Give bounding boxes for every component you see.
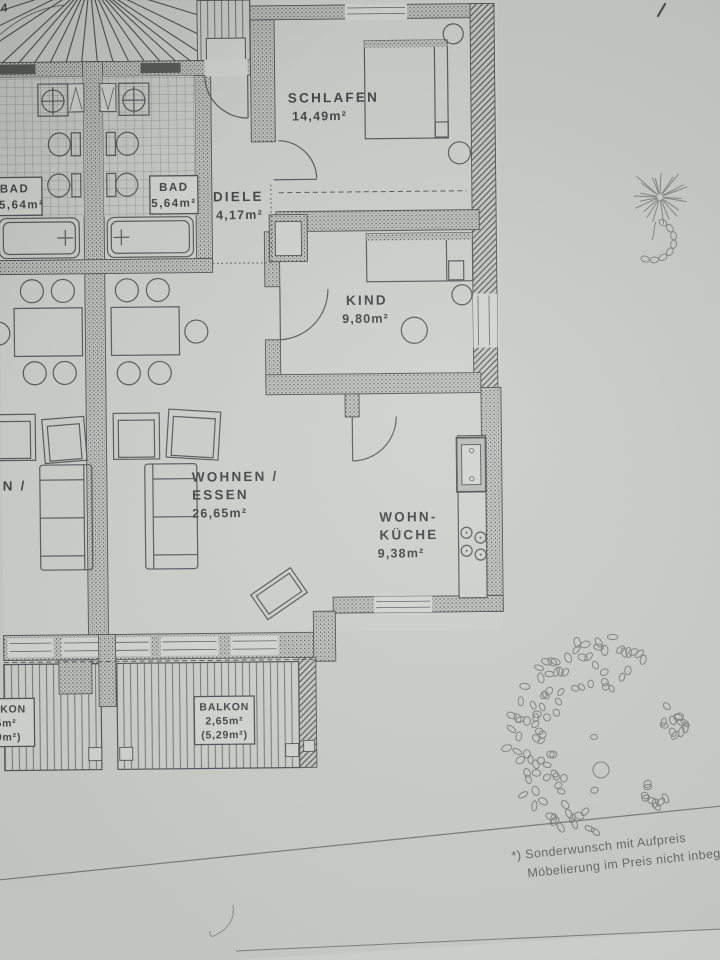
- room-label-bad-left: BAD: [0, 183, 29, 195]
- room-area-balkon-left: 2,65m²: [0, 717, 17, 729]
- room-area-kueche: 9,38m²: [378, 546, 425, 560]
- room-area-bad-right: 5,64m²: [151, 198, 197, 210]
- room-area-diele: 4,17m²: [216, 208, 263, 222]
- room-label-wohnen-1: WOHNEN /: [192, 469, 279, 485]
- footnote: *) Sonderwunsch mit Aufpreis Möbelierung…: [511, 827, 720, 882]
- room-label-schlafen: SCHLAFEN: [288, 90, 379, 106]
- floorplan-photo: 4: [0, 0, 720, 960]
- room-label-bad-right: BAD: [159, 182, 189, 194]
- room-area-bad-left: 5,64m²: [0, 199, 44, 211]
- pen-mark: [658, 4, 665, 16]
- room-label-kind: KIND: [346, 293, 388, 308]
- room-area-wohnen: 26,65m²: [192, 506, 247, 521]
- entry-landing: [197, 0, 251, 63]
- tree-icon: [634, 173, 687, 263]
- room-area2-balkon: (5,29m²): [201, 729, 248, 741]
- floorplan: 4: [0, 0, 720, 960]
- pebbles-icon: [501, 634, 691, 837]
- kitchen-counter: [456, 436, 487, 598]
- room-label-kueche-1: WOHN-: [379, 509, 437, 525]
- crease-mark: [210, 905, 234, 936]
- room-label-wohnen-2: ESSEN: [192, 487, 249, 503]
- room-label-balkon-left: BALKON: [0, 703, 26, 716]
- room-area-schlafen: 14,49m²: [292, 109, 347, 124]
- room-label-balkon: BALKON: [199, 701, 249, 714]
- room-label-kueche-2: KÜCHE: [379, 527, 438, 543]
- balcony-right: BALKON 2,65m² (5,29m²): [117, 657, 317, 769]
- stair-number: 4: [1, 3, 9, 15]
- sheet-edge-lines: [0, 806, 720, 960]
- room-area2-balkon-left: (5,29m²): [0, 731, 21, 743]
- room-label-wohnen-left: WOHNEN /: [0, 478, 27, 494]
- room-area-kind: 9,80m²: [342, 312, 389, 326]
- room-label-diele: DIELE: [213, 189, 264, 205]
- room-area-balkon: 2,65m²: [205, 715, 243, 727]
